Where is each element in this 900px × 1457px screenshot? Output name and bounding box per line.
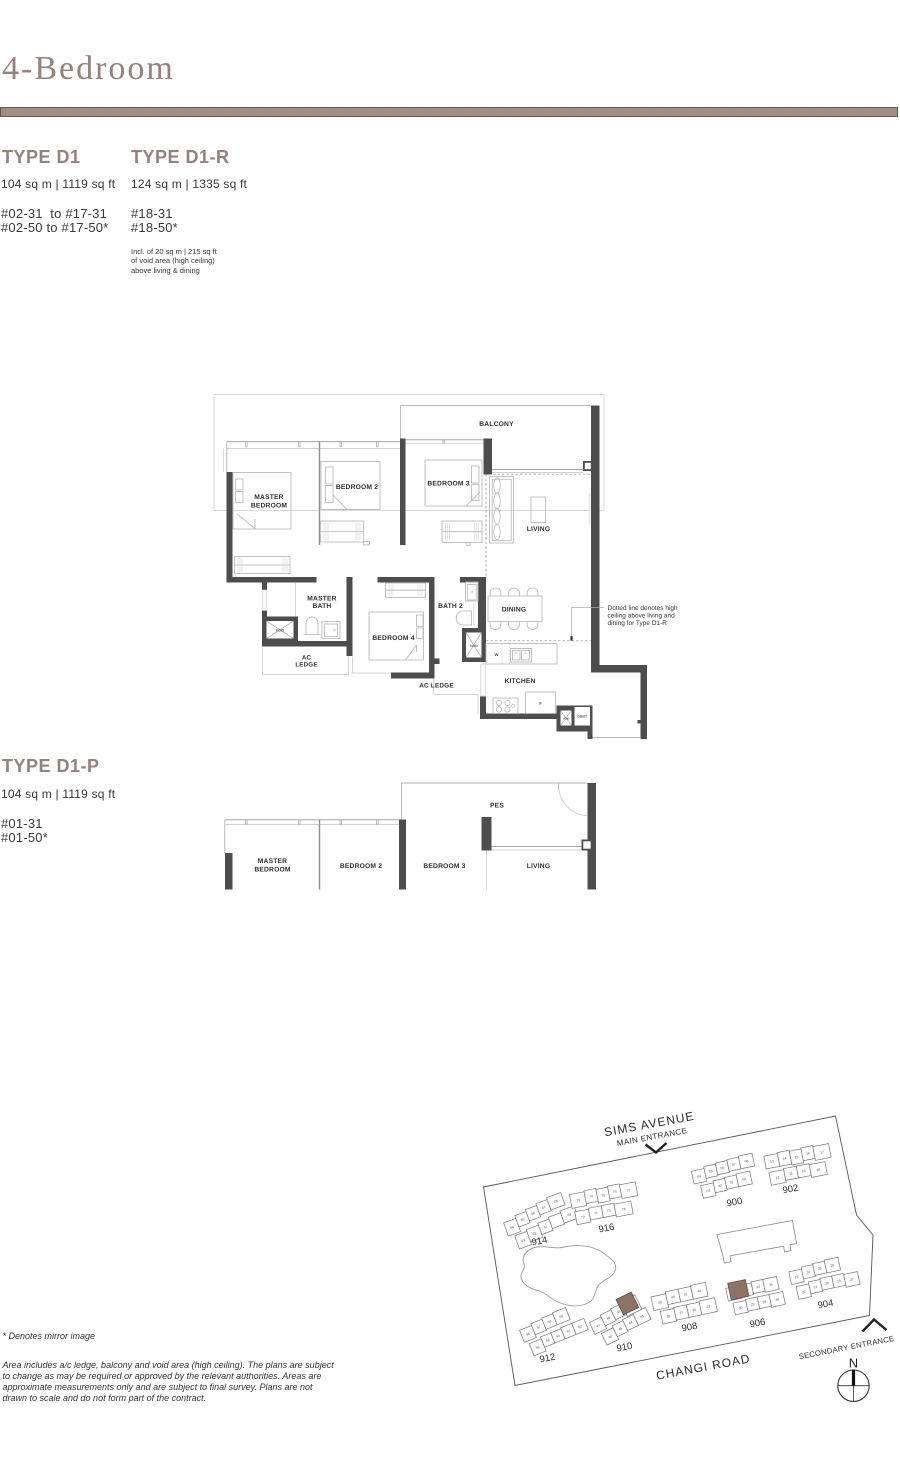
svg-text:BALCONY: BALCONY	[479, 421, 514, 428]
svg-text:BATH 2: BATH 2	[438, 603, 463, 610]
svg-text:MASTER: MASTER	[258, 858, 287, 865]
svg-text:BEDROOM: BEDROOM	[251, 503, 288, 510]
svg-text:BEDROOM 2: BEDROOM 2	[336, 484, 378, 491]
svg-text:BEDROOM 2: BEDROOM 2	[340, 863, 382, 870]
svg-text:LEDGE: LEDGE	[295, 662, 317, 669]
svg-text:908: 908	[681, 1321, 699, 1335]
svg-text:BATH: BATH	[313, 603, 332, 610]
svg-text:BEDROOM 3: BEDROOM 3	[423, 863, 465, 870]
svg-text:KITCHEN: KITCHEN	[504, 678, 535, 685]
svg-text:VOID: VOID	[276, 629, 285, 633]
svg-text:902: 902	[782, 1183, 800, 1197]
svg-text:DINING: DINING	[502, 607, 527, 614]
svg-text:W: W	[495, 652, 499, 657]
svg-text:912: 912	[539, 1352, 557, 1366]
svg-text:BEDROOM: BEDROOM	[254, 867, 291, 874]
svg-text:AC: AC	[302, 655, 312, 662]
svg-text:MASTER: MASTER	[307, 596, 336, 603]
svg-text:N: N	[849, 1356, 858, 1371]
svg-text:LIVING: LIVING	[527, 863, 551, 870]
svg-text:LIVING: LIVING	[527, 526, 551, 533]
svg-text:BEDROOM 3: BEDROOM 3	[427, 481, 469, 488]
svg-text:910: 910	[616, 1341, 634, 1355]
svg-text:900: 900	[726, 1196, 744, 1210]
svg-text:VOID: VOID	[563, 717, 570, 721]
svg-text:F: F	[539, 701, 542, 706]
svg-text:904: 904	[817, 1298, 835, 1312]
svg-text:BEDROOM 4: BEDROOM 4	[372, 635, 414, 642]
svg-text:MASTER: MASTER	[254, 494, 283, 501]
svg-text:916: 916	[598, 1222, 616, 1236]
svg-text:AC LEDGE: AC LEDGE	[419, 683, 454, 690]
svg-text:dining for Type D1-R: dining for Type D1-R	[608, 620, 668, 627]
svg-text:VOID: VOID	[470, 644, 478, 648]
svg-text:906: 906	[749, 1317, 767, 1331]
svg-text:DB/ST: DB/ST	[578, 715, 588, 719]
svg-text:CHANGI ROAD: CHANGI ROAD	[655, 1351, 752, 1382]
svg-text:Dotted line denotes high: Dotted line denotes high	[608, 605, 678, 612]
svg-text:PES: PES	[490, 803, 504, 810]
svg-text:ceiling above living and: ceiling above living and	[608, 612, 676, 619]
svg-text:SECONDARY ENTRANCE: SECONDARY ENTRANCE	[798, 1334, 895, 1361]
